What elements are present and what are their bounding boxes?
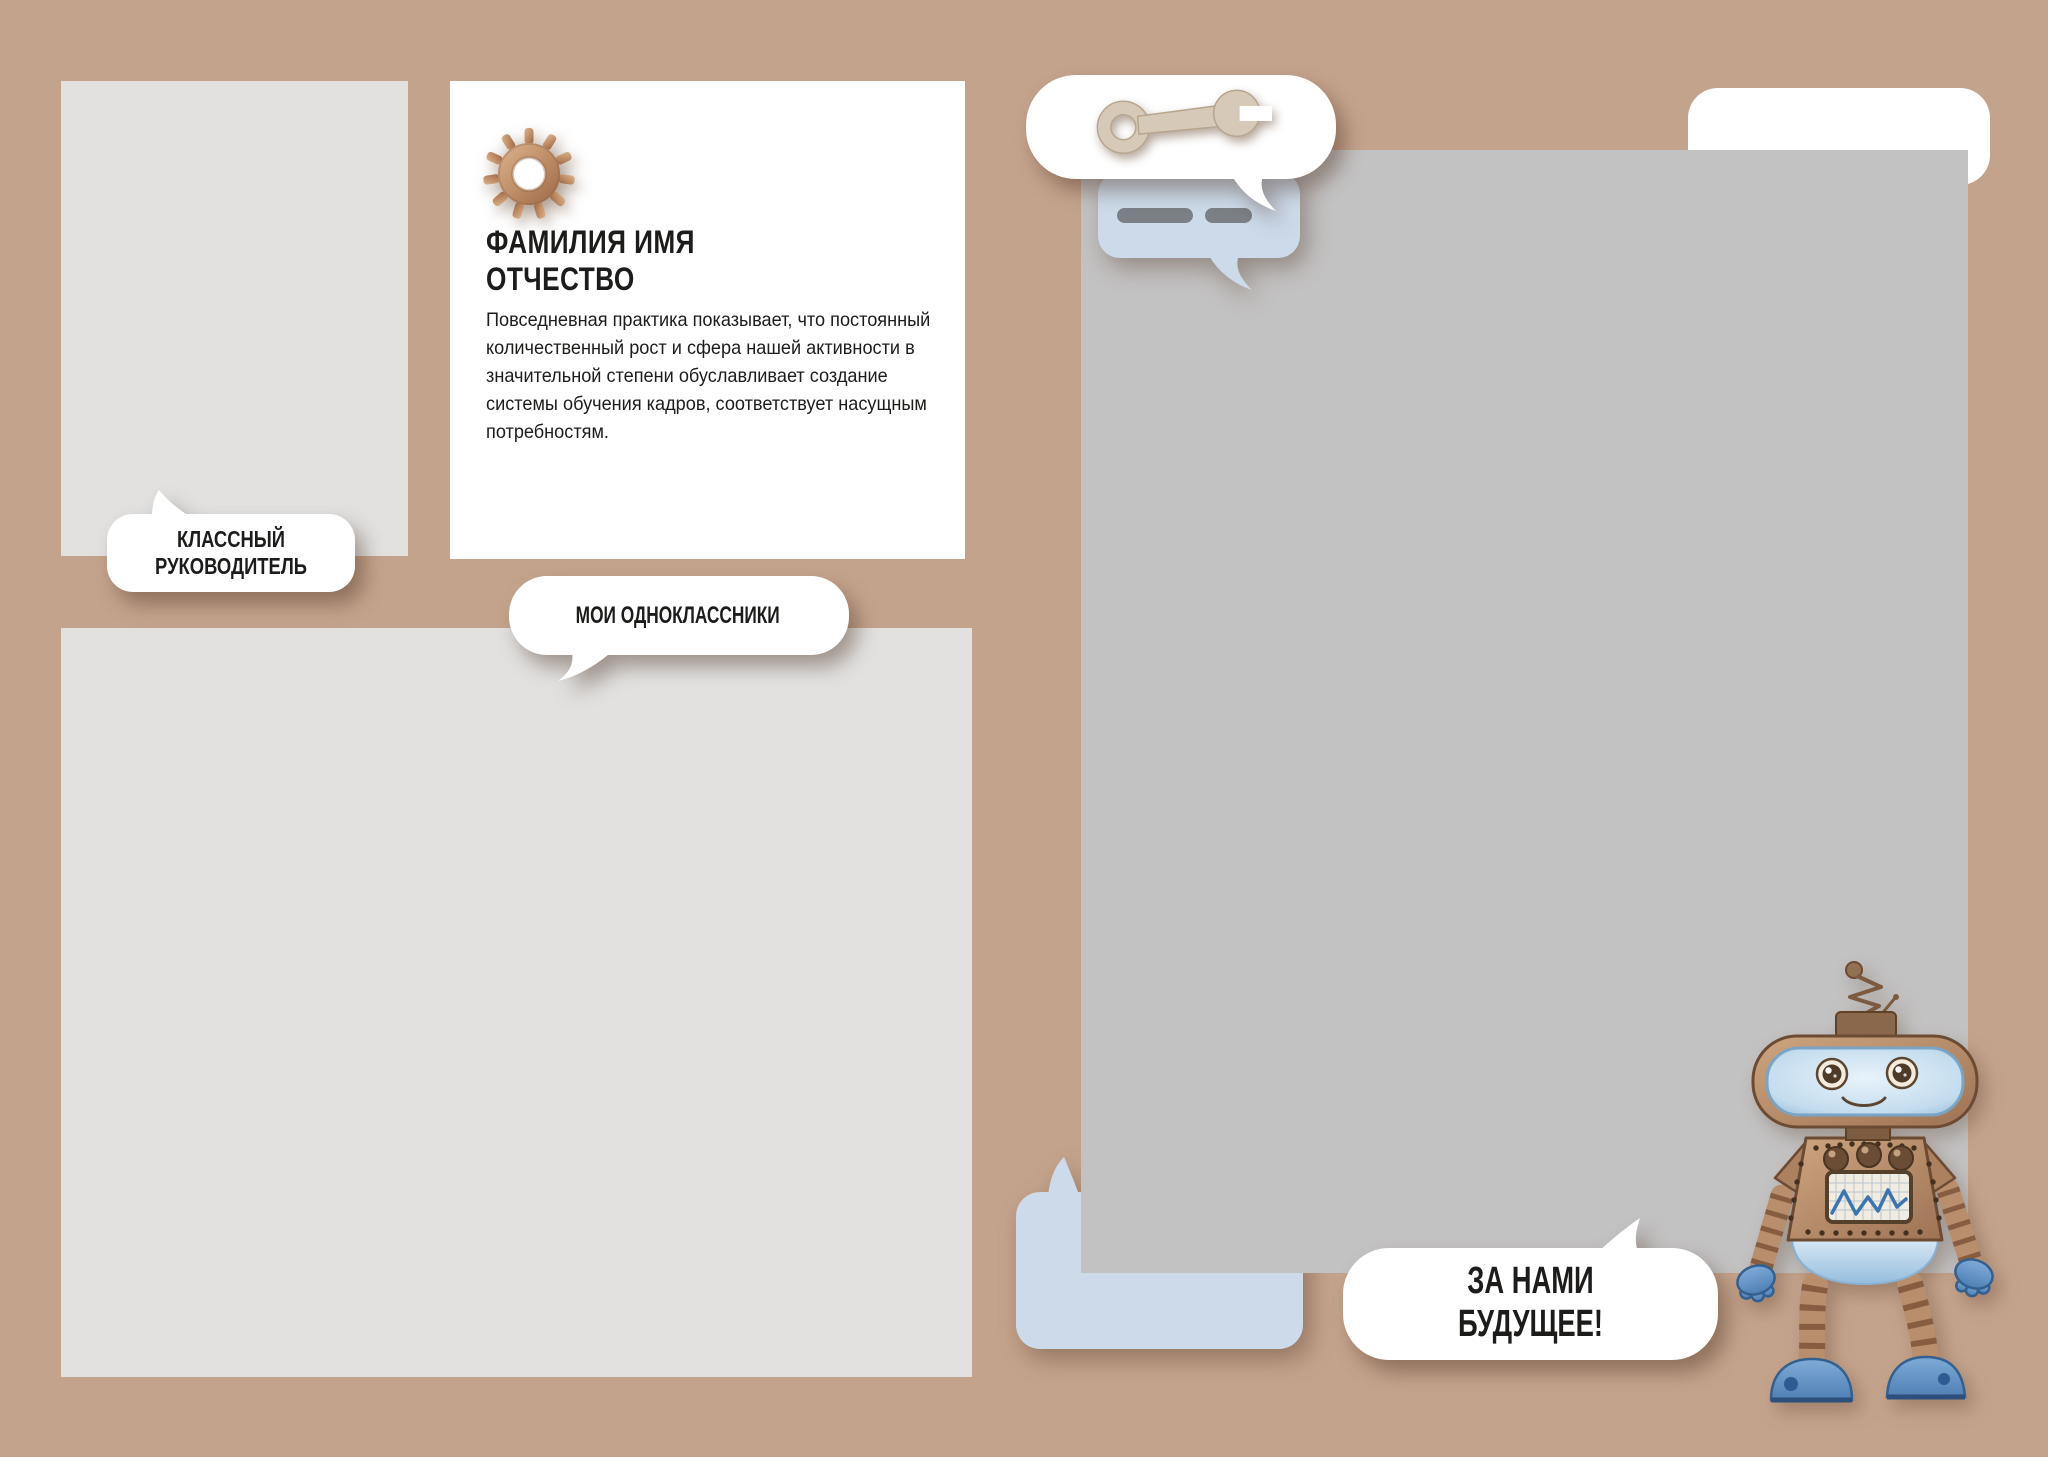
robot-illustration [1730,956,2000,1408]
future-bubble-label: ЗА НАМИ БУДУЩЕЕ! [1343,1248,1718,1358]
yearbook-template-page: ФАМИЛИЯ ИМЯ ОТЧЕСТВО Повседневная практи… [0,0,2048,1457]
profile-name-title: ФАМИЛИЯ ИМЯ ОТЧЕСТВО [486,224,786,298]
teacher-bubble-label: КЛАССНЫЙ РУКОВОДИТЕЛЬ [107,514,355,592]
gear-icon [483,128,575,220]
profile-description-text: Повседневная практика показывает, что по… [486,306,998,446]
wrench-icon [1096,84,1272,156]
classmates-bubble-label: МОИ ОДНОКЛАССНИКИ [509,576,847,655]
classmates-photo-placeholder [61,628,972,1377]
